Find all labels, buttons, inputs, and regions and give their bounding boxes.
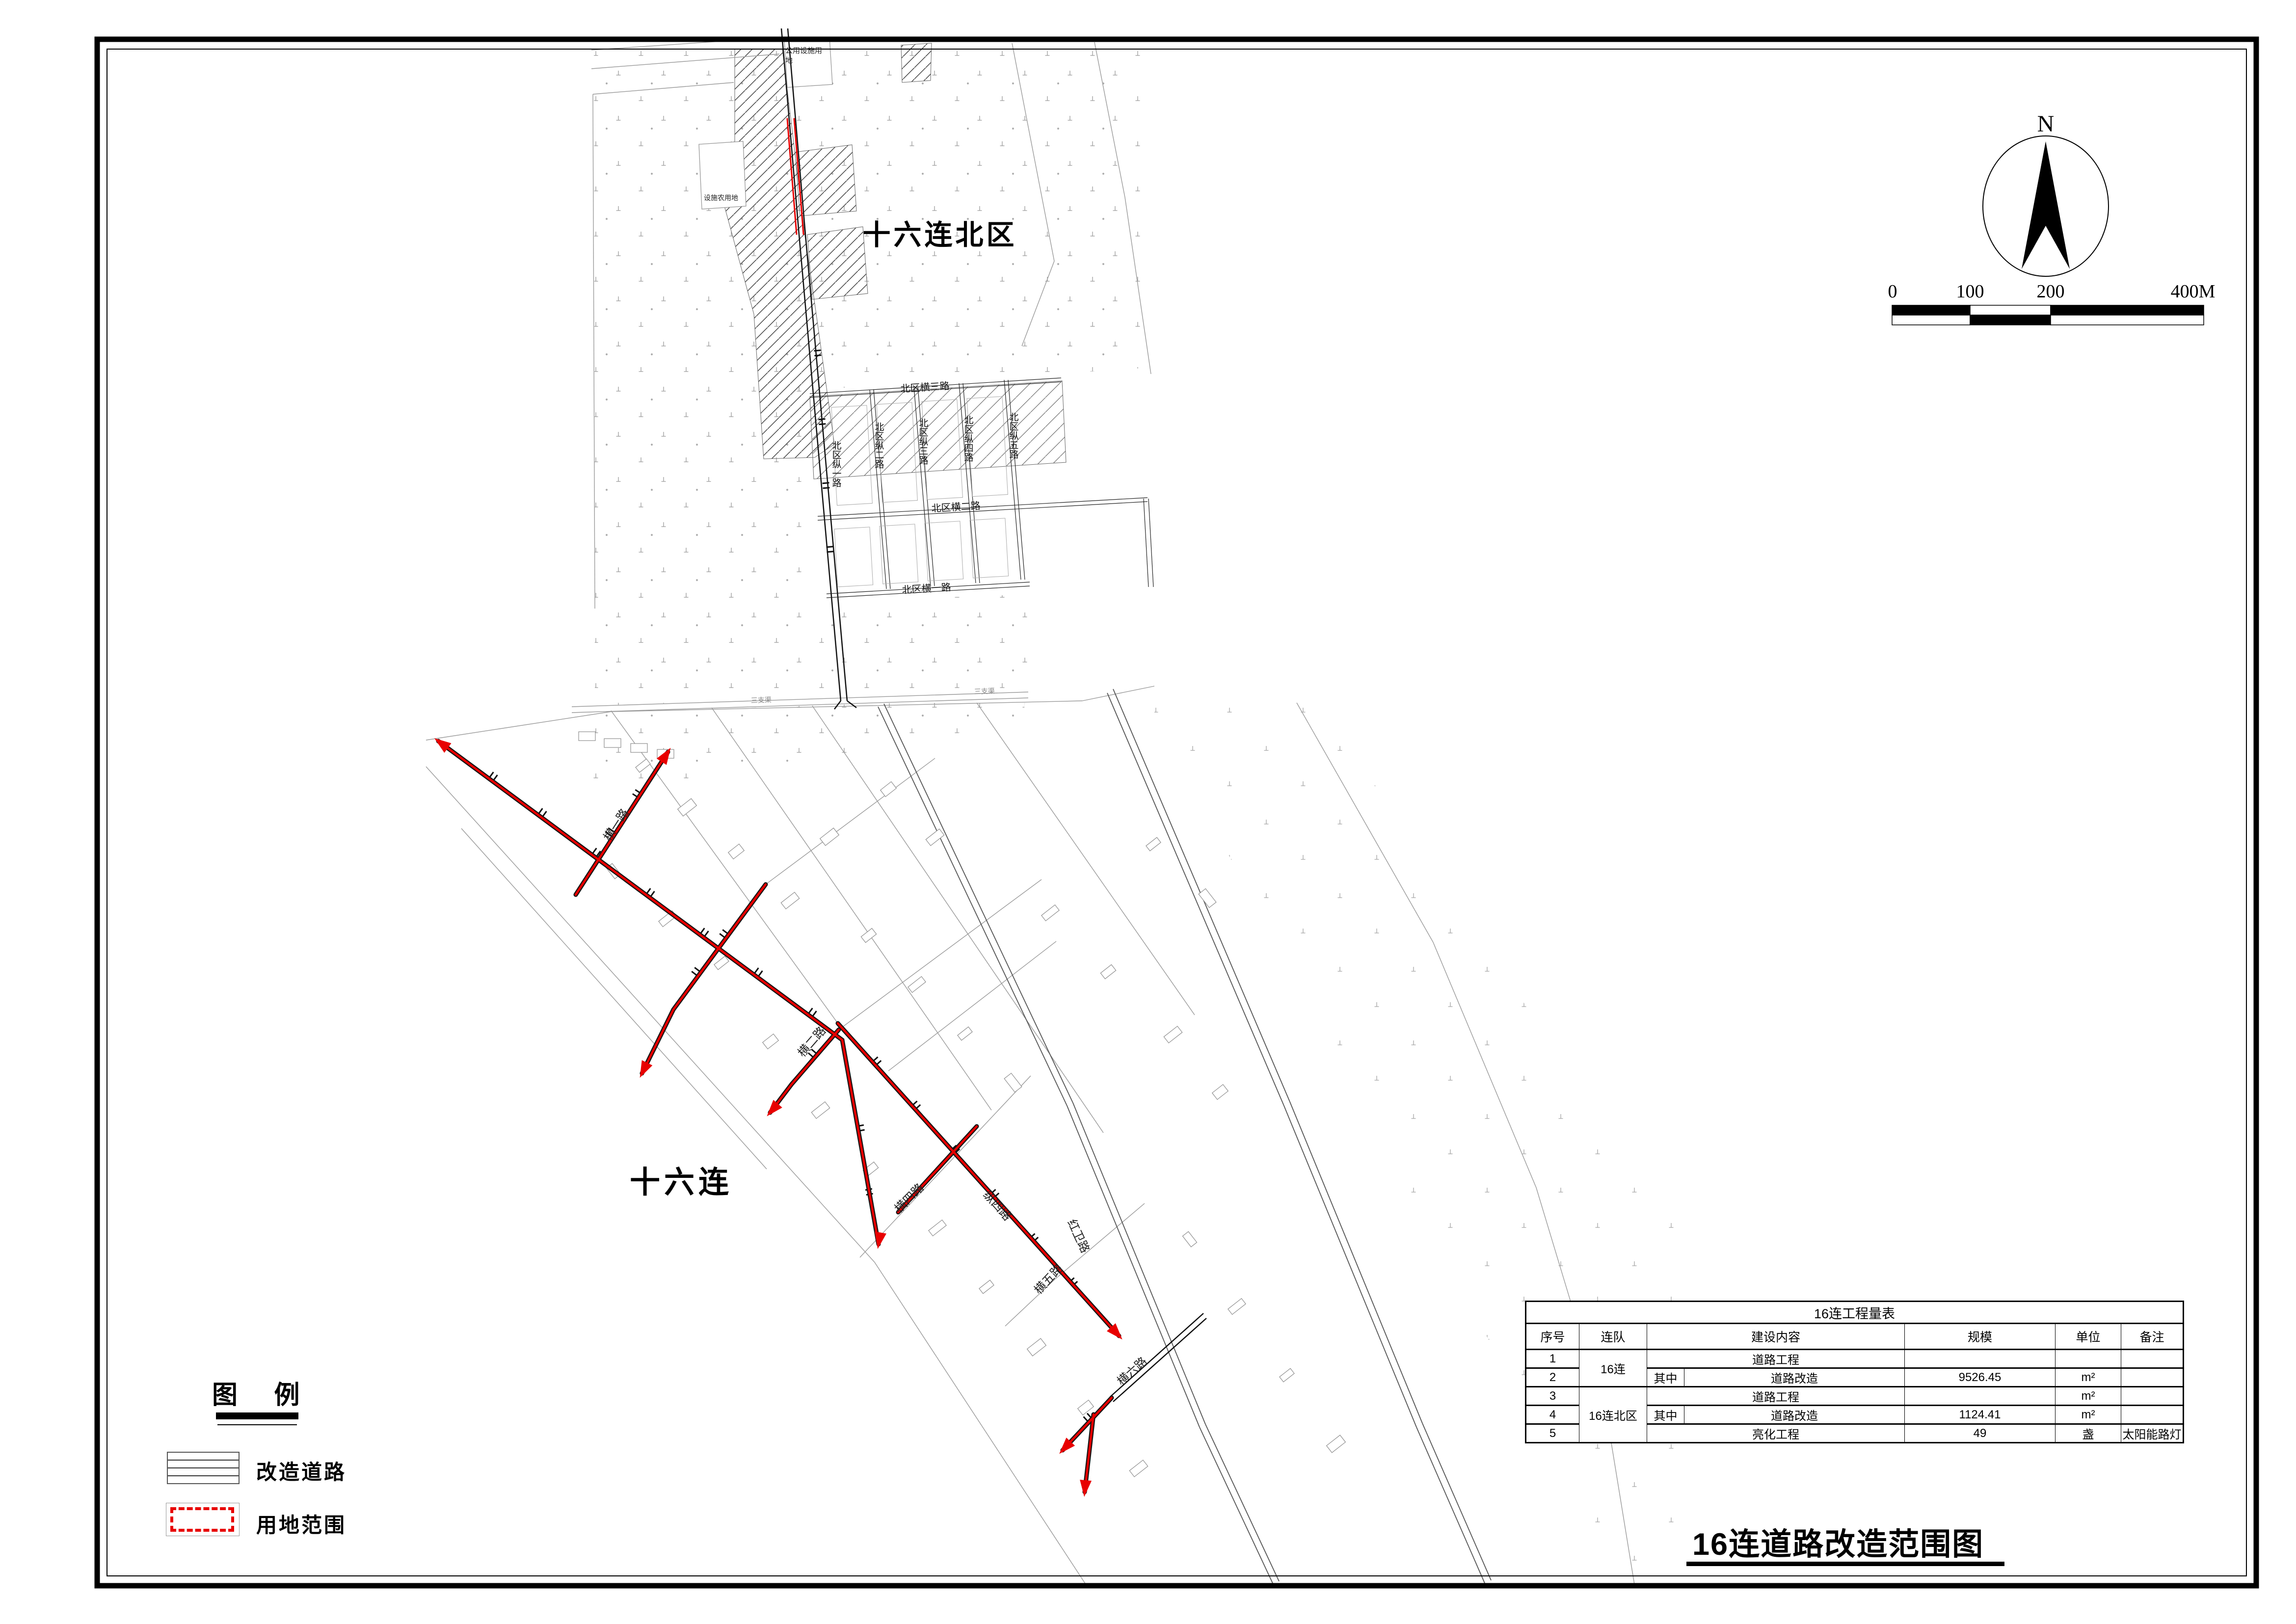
- legend-land-scope-symbol: [166, 1503, 240, 1536]
- col-header-scale: 规模: [1905, 1324, 2056, 1350]
- cell-note: 太阳能路灯: [2121, 1424, 2184, 1443]
- table-row: 3 16连北区 道路工程 m²: [1526, 1387, 2184, 1406]
- scale-tick-100: 100: [1956, 281, 1984, 302]
- cell-no: 2: [1526, 1368, 1579, 1387]
- cell-unit: m²: [2056, 1406, 2121, 1424]
- scale-tick-200: 200: [2037, 281, 2065, 302]
- cell-scale: 49: [1905, 1424, 2056, 1443]
- quantity-table: 16连工程量表 序号 连队 建设内容 规模 单位 备注 1 16连 道路工程 2…: [1525, 1301, 2183, 1443]
- label-nzong2: 北区纵二路: [874, 422, 884, 469]
- col-header-company: 连队: [1579, 1324, 1647, 1350]
- legend-renovated-road-symbol: [167, 1452, 240, 1484]
- cell-unit: [2056, 1350, 2121, 1368]
- cell-no: 5: [1526, 1424, 1579, 1443]
- cell-sub: 其中: [1647, 1406, 1684, 1424]
- compass-needle: [2022, 141, 2070, 269]
- label-north-district: 十六连北区: [863, 219, 1017, 251]
- cell-unit: 盏: [2056, 1424, 2121, 1443]
- drawing-title: 16连道路改造范围图: [1692, 1519, 1984, 1564]
- cell-scale: 9526.45: [1905, 1368, 2056, 1387]
- col-header-no: 序号: [1526, 1324, 1579, 1350]
- cell-note: [2121, 1387, 2184, 1406]
- scale-tick-400: 400M: [2171, 281, 2216, 302]
- label-nzong4: 北区纵四路: [963, 415, 974, 462]
- col-header-content: 建设内容: [1647, 1324, 1905, 1350]
- cell-content: 道路工程: [1647, 1387, 1905, 1406]
- legend-title: 图 例: [212, 1374, 314, 1411]
- col-header-unit: 单位: [2056, 1324, 2121, 1350]
- label-nzong1: 北区纵一路: [831, 441, 842, 487]
- cell-company: 16连: [1579, 1350, 1647, 1387]
- cell-no: 4: [1526, 1406, 1579, 1424]
- cell-sub: 其中: [1647, 1368, 1684, 1387]
- label-company: 十六连: [630, 1166, 733, 1199]
- cell-content: 亮化工程: [1647, 1424, 1905, 1443]
- cell-content: 道路工程: [1647, 1350, 1905, 1368]
- cell-company: 16连北区: [1579, 1387, 1647, 1443]
- scale-tick-0: 0: [1888, 281, 1897, 302]
- cell-content: 道路改造: [1684, 1368, 1905, 1387]
- label-channel-2: 三支渠: [974, 687, 995, 695]
- label-agri-facility: 设施农用地: [704, 194, 738, 202]
- label-hongwei: 红卫路: [1065, 1217, 1092, 1255]
- legend-land-scope-dashed-box: [170, 1507, 234, 1532]
- scale-bar: 0 100 200 400M: [1888, 281, 2216, 325]
- label-public-facility: 公用设施用地: [785, 46, 824, 66]
- label-nzong3: 北区纵三路: [918, 418, 929, 465]
- table-title: 16连工程量表: [1526, 1302, 2184, 1324]
- col-header-note: 备注: [2121, 1324, 2184, 1350]
- cell-note: [2121, 1350, 2184, 1368]
- label-szong4: 纵四路: [980, 1188, 1014, 1224]
- cell-unit: m²: [2056, 1387, 2121, 1406]
- road-end-arrows: [431, 733, 1127, 1497]
- cell-no: 1: [1526, 1350, 1579, 1368]
- legend-title-underline: [216, 1412, 298, 1419]
- table-row: 1 16连 道路工程: [1526, 1350, 2184, 1368]
- cell-scale: [1905, 1350, 2056, 1368]
- label-sheng4: 横四路: [892, 1181, 927, 1216]
- label-channel-1: 三支渠: [751, 696, 772, 704]
- legend-title-underline-thin: [217, 1424, 297, 1425]
- cell-no: 3: [1526, 1387, 1579, 1406]
- cell-unit: m²: [2056, 1368, 2121, 1387]
- legend-land-scope-label: 用地范围: [256, 1509, 347, 1539]
- drawing-title-underline: [1686, 1562, 2004, 1566]
- drawing-sheet: 十六连北区 十六连 设施农用地 三支渠 三支渠 北区横三路 北区横二路 北区横一…: [0, 0, 2296, 1624]
- label-nzong5: 北区纵五路: [1008, 412, 1019, 459]
- cell-content: 道路改造: [1684, 1406, 1905, 1424]
- label-sheng5: 横五路: [1032, 1262, 1066, 1297]
- legend-renovated-road-label: 改造道路: [256, 1456, 347, 1486]
- north-compass: N: [1983, 111, 2109, 276]
- cell-scale: [1905, 1387, 2056, 1406]
- label-sheng1: 横一路: [601, 806, 632, 843]
- label-sheng2: 横二路: [796, 1024, 829, 1060]
- compass-n-label: N: [2037, 111, 2055, 137]
- label-sheng6: 横六路: [1115, 1355, 1150, 1388]
- cell-scale: 1124.41: [1905, 1406, 2056, 1424]
- cell-note: [2121, 1406, 2184, 1424]
- cell-note: [2121, 1368, 2184, 1387]
